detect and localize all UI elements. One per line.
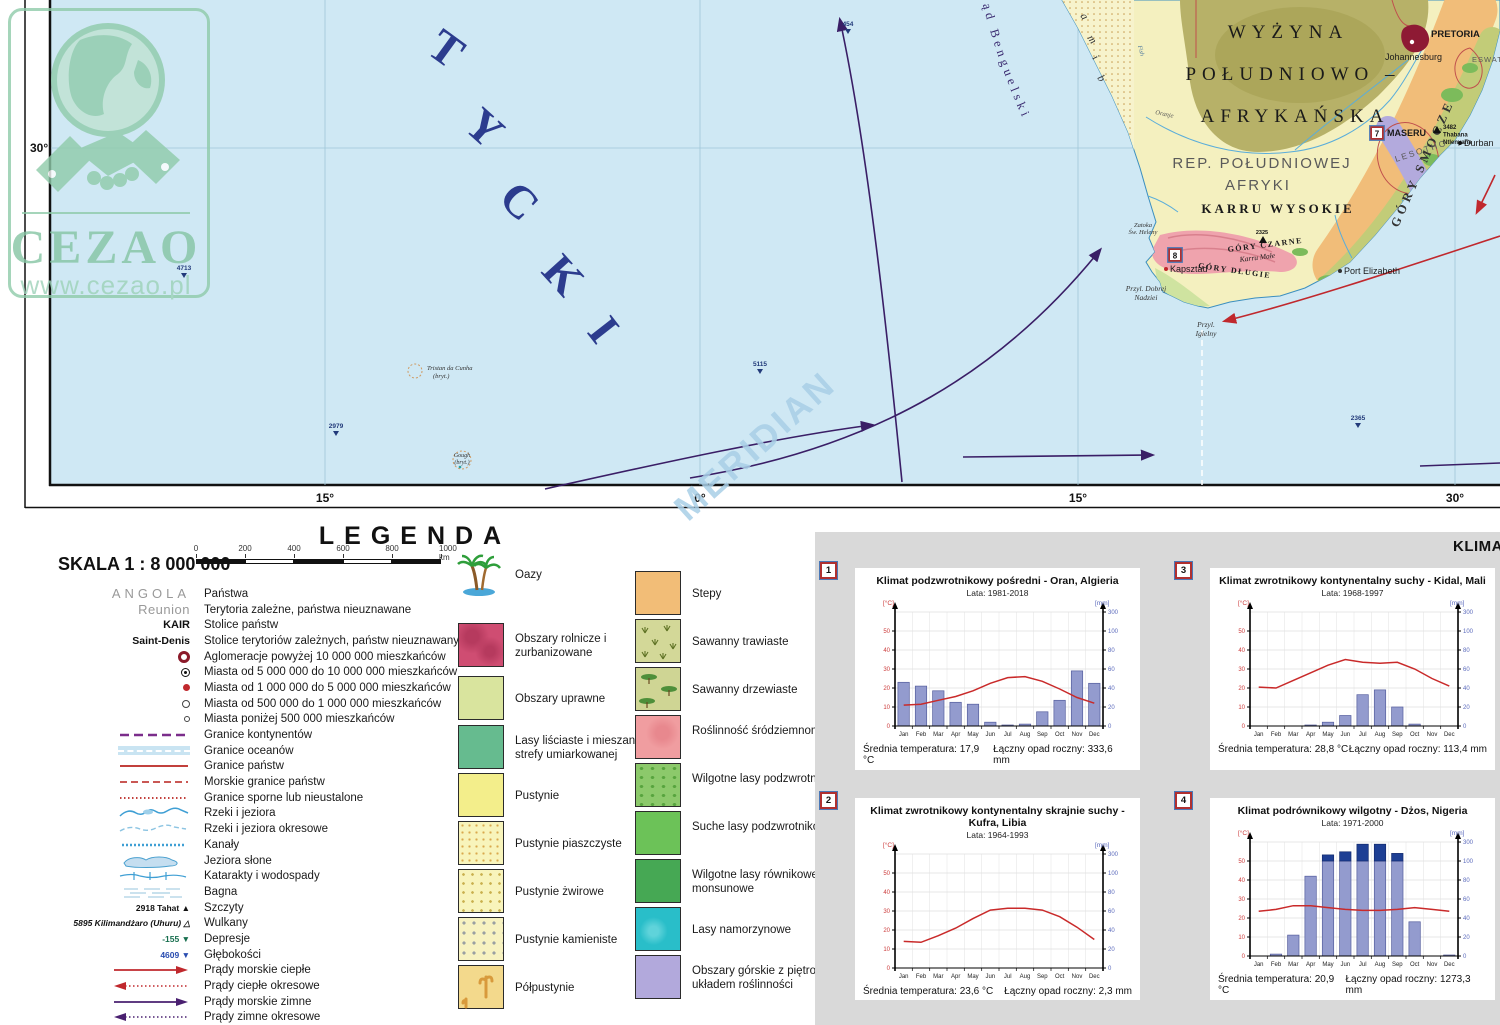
climate-panel-title: KLIMA [1453, 538, 1500, 555]
svg-text:30: 30 [883, 667, 890, 673]
chart-title: Klimat zwrotnikowy kontynentalny suchy -… [1210, 575, 1495, 587]
label-przyl-igielny-2: Igielny [1195, 329, 1217, 338]
cold-current-icon [112, 997, 190, 1007]
svg-text:Aug: Aug [1020, 732, 1031, 738]
svg-text:Sep: Sep [1037, 732, 1048, 738]
svg-text:100: 100 [1108, 871, 1119, 877]
svg-text:100: 100 [1108, 629, 1119, 635]
climograph-chart: 01020304050020406080100300JanFebMarAprMa… [1220, 828, 1485, 978]
svg-text:300: 300 [1463, 610, 1474, 616]
scale-tick: 400 [287, 544, 300, 553]
label-zatoka-1: Zatoka [1134, 222, 1152, 229]
svg-text:20: 20 [1108, 705, 1115, 711]
svg-text:50: 50 [883, 871, 890, 877]
label-poludniowo: POŁUDNIOWO – [1185, 64, 1400, 85]
label-johannesburg: Johannesburg [1385, 52, 1442, 62]
depth-sample: 4609 ▼ [160, 950, 190, 960]
waterfall-icon [118, 870, 190, 882]
svg-text:40: 40 [883, 890, 890, 896]
label-maseru: MASERU [1387, 128, 1426, 138]
svg-text:0: 0 [1242, 954, 1246, 960]
steppe-swatch [635, 571, 681, 615]
svg-text:Jan: Jan [899, 974, 909, 980]
humid-subtropical-forest-swatch [635, 763, 681, 807]
svg-text:Jul: Jul [1359, 962, 1367, 968]
svg-text:0: 0 [1108, 724, 1112, 730]
salt-lake-icon [118, 853, 190, 869]
label-wyzyna: WYŻYNA [1228, 22, 1348, 43]
svg-text:30: 30 [1238, 897, 1245, 903]
sand-desert-swatch [458, 821, 504, 865]
svg-text:Nov: Nov [1427, 732, 1438, 738]
climograph-chart: 01020304050020406080100300JanFebMarAprMa… [865, 840, 1130, 990]
warm-seasonal-current-icon [112, 981, 190, 991]
svg-text:Jun: Jun [1340, 732, 1350, 738]
svg-text:Feb: Feb [1271, 962, 1282, 968]
svg-text:Mar: Mar [933, 974, 943, 980]
svg-text:20: 20 [883, 928, 890, 934]
warm-current-icon [112, 965, 190, 975]
lon-label-15e: 15° [1069, 491, 1087, 505]
svg-text:Oct: Oct [1410, 962, 1420, 968]
state-border-icon [118, 761, 190, 771]
chart-years: Lata: 1964-1993 [855, 830, 1140, 840]
svg-text:Aug: Aug [1020, 974, 1031, 980]
svg-text:300: 300 [1108, 610, 1119, 616]
svg-text:Jan: Jan [899, 732, 909, 738]
svg-text:Dec: Dec [1444, 962, 1455, 968]
river-icon [118, 806, 190, 820]
label-thabana-elev: 3482 [1443, 125, 1457, 131]
svg-text:2325: 2325 [1256, 230, 1268, 236]
svg-text:20: 20 [1238, 916, 1245, 922]
svg-text:300: 300 [1463, 840, 1474, 846]
sea-border-icon [118, 777, 190, 787]
city-5m-icon [181, 668, 190, 677]
svg-text:Apr: Apr [951, 974, 960, 980]
desert-swatch [458, 773, 504, 817]
label-przyl-igielny-1: Przyl. [1196, 320, 1215, 329]
svg-text:Sep: Sep [1392, 732, 1403, 738]
svg-text:Dec: Dec [1089, 974, 1100, 980]
map-badge-8: 8 [1173, 252, 1178, 261]
svg-text:0: 0 [1463, 954, 1467, 960]
svg-text:[mm]: [mm] [1450, 600, 1465, 607]
label-gough-bryt: (bryt.) [454, 459, 469, 466]
svg-text:30: 30 [1238, 667, 1245, 673]
svg-text:20: 20 [1463, 935, 1470, 941]
grass-tufts-icon [635, 619, 681, 663]
svg-text:20: 20 [1238, 686, 1245, 692]
svg-text:Feb: Feb [916, 732, 927, 738]
svg-text:40: 40 [1238, 878, 1245, 884]
svg-text:2979: 2979 [329, 423, 344, 430]
svg-text:Dec: Dec [1089, 732, 1100, 738]
svg-text:300: 300 [1108, 852, 1119, 858]
svg-text:40: 40 [1108, 686, 1115, 692]
mediterranean-swatch [635, 715, 681, 759]
label-afrykanska: AFRYKAŃSKA [1201, 105, 1390, 127]
svg-text:10: 10 [883, 705, 890, 711]
svg-text:2365: 2365 [1351, 415, 1366, 422]
svg-text:20: 20 [1108, 947, 1115, 953]
svg-text:40: 40 [1238, 648, 1245, 654]
svg-text:Jun: Jun [1340, 962, 1350, 968]
svg-text:May: May [1322, 732, 1333, 738]
annual-precip: Łączny opad roczny: 113,4 mm [1349, 744, 1487, 755]
svg-text:Apr: Apr [951, 732, 960, 738]
map-section: 30° 15° 0° 15° 30° [0, 0, 1500, 510]
dependent-capital-sample: Saint-Denis [132, 635, 190, 647]
svg-text:Oct: Oct [1055, 732, 1065, 738]
svg-text:0: 0 [1463, 724, 1467, 730]
chart-badge-4: 4 [1175, 792, 1192, 809]
svg-text:80: 80 [1463, 878, 1470, 884]
svg-text:Jan: Jan [1254, 732, 1264, 738]
svg-text:100: 100 [1463, 859, 1474, 865]
label-pretoria: PRETORIA [1431, 29, 1480, 40]
climate-card-kufra: Klimat zwrotnikowy kontynentalny skrajni… [855, 798, 1140, 1000]
svg-text:60: 60 [1108, 667, 1115, 673]
svg-text:60: 60 [1463, 897, 1470, 903]
svg-text:10: 10 [1238, 935, 1245, 941]
svg-text:0: 0 [887, 724, 891, 730]
scale-tick: 1000 km [439, 544, 457, 562]
svg-text:100: 100 [1463, 629, 1474, 635]
annual-precip: Łączny opad roczny: 333,6 mm [993, 744, 1132, 766]
svg-text:40: 40 [883, 648, 890, 654]
label-durban: Durban [1464, 138, 1494, 148]
svg-text:4713: 4713 [177, 265, 192, 272]
label-zatoka-2: Św. Heleny [1129, 228, 1158, 236]
acacia-trees-icon [635, 667, 681, 711]
mangrove-swatch [635, 907, 681, 951]
farmland-swatch [458, 623, 504, 667]
disputed-border-icon [118, 793, 190, 803]
annual-precip: Łączny opad roczny: 1273,3 mm [1345, 974, 1487, 996]
svg-text:40: 40 [1108, 928, 1115, 934]
territory-name-sample: Reunion [138, 602, 190, 617]
svg-text:Jan: Jan [1254, 962, 1264, 968]
lon-label-30e: 30° [1446, 491, 1464, 505]
svg-text:0: 0 [1108, 966, 1112, 972]
label-afryki: AFRYKI [1225, 177, 1291, 194]
svg-text:Nov: Nov [1072, 974, 1083, 980]
climograph-dzos: 01020304050020406080100300JanFebMarAprMa… [1220, 828, 1485, 978]
scale-tick: 200 [238, 544, 251, 553]
climate-card-dzos: Klimat podrównikowy wilgotny - Dżos, Nig… [1210, 798, 1495, 1000]
equatorial-forest-swatch [635, 859, 681, 903]
scale-tick: 800 [385, 544, 398, 553]
svg-text:Feb: Feb [916, 974, 927, 980]
chart-years: Lata: 1968-1997 [1210, 588, 1495, 598]
svg-text:80: 80 [1108, 890, 1115, 896]
chart-badge-2: 2 [820, 792, 837, 809]
svg-text:50: 50 [1238, 629, 1245, 635]
svg-text:Oct: Oct [1055, 974, 1065, 980]
svg-text:80: 80 [1108, 648, 1115, 654]
svg-text:Jul: Jul [1004, 732, 1012, 738]
svg-text:[°C]: [°C] [883, 841, 894, 849]
climograph-chart: 01020304050020406080100300JanFebMarAprMa… [1220, 598, 1485, 748]
marsh-icon [118, 886, 190, 898]
svg-text:10: 10 [883, 947, 890, 953]
svg-text:Nov: Nov [1427, 962, 1438, 968]
depression-sample: -155 ▼ [162, 934, 190, 944]
label-karru-wysokie: KARRU WYSOKIE [1201, 201, 1354, 216]
chart-badge-1: 1 [820, 562, 837, 579]
svg-text:80: 80 [1463, 648, 1470, 654]
svg-text:40: 40 [1463, 916, 1470, 922]
peak-sample: 2918 Tahat ▲ [136, 903, 190, 913]
svg-text:Jul: Jul [1004, 974, 1012, 980]
dry-subtropical-forest-swatch [635, 811, 681, 855]
svg-text:Mar: Mar [1288, 732, 1298, 738]
svg-text:May: May [967, 974, 978, 980]
canal-icon [118, 841, 190, 849]
svg-text:5115: 5115 [753, 361, 767, 368]
label-eswatini: ESWATINI [1472, 55, 1500, 64]
svg-text:60: 60 [1108, 909, 1115, 915]
cold-seasonal-current-icon [112, 1012, 190, 1022]
lat-label-30: 30° [30, 141, 48, 155]
annual-precip: Łączny opad roczny: 2,3 mm [1004, 986, 1132, 997]
svg-text:60: 60 [1463, 667, 1470, 673]
svg-text:[mm]: [mm] [1095, 842, 1110, 849]
avg-temp: Średnia temperatura: 23,6 °C [863, 986, 993, 997]
svg-text:Oct: Oct [1410, 732, 1420, 738]
svg-text:40: 40 [1463, 686, 1470, 692]
legend-symbol-list: ANGOLAPaństwa ReunionTerytoria zależne, … [60, 586, 455, 1025]
avg-temp: Średnia temperatura: 20,9 °C [1218, 974, 1345, 996]
avg-temp: Średnia temperatura: 17,9 °C [863, 744, 993, 766]
svg-text:Mar: Mar [933, 732, 943, 738]
seasonal-river-icon [118, 823, 190, 835]
legend-section: LEGENDA SKALA 1 : 8 000 000 0 200 400 60… [0, 510, 815, 1025]
continent-border-icon [118, 730, 190, 740]
svg-text:Jun: Jun [985, 732, 995, 738]
country-name-sample: ANGOLA [112, 586, 190, 601]
ocean-border-icon [118, 746, 190, 755]
svg-text:30: 30 [883, 909, 890, 915]
map-svg: 30° 15° 0° 15° 30° [0, 0, 1500, 510]
svg-text:[°C]: [°C] [883, 599, 894, 607]
svg-text:Sep: Sep [1037, 974, 1048, 980]
chart-title: Klimat podzwrotnikowy pośredni - Oran, A… [855, 575, 1140, 587]
svg-text:Jun: Jun [985, 974, 995, 980]
svg-text:[mm]: [mm] [1450, 830, 1465, 837]
climate-card-kidal: Klimat zwrotnikowy kontynentalny suchy -… [1210, 568, 1495, 770]
scale-bar: 0 200 400 600 800 1000 km [196, 544, 466, 572]
svg-text:Nov: Nov [1072, 732, 1083, 738]
svg-text:[°C]: [°C] [1238, 599, 1249, 607]
svg-text:Jul: Jul [1359, 732, 1367, 738]
lon-label-0: 0° [694, 491, 706, 505]
cropland-swatch [458, 676, 504, 720]
gravel-desert-swatch [458, 869, 504, 913]
map-badge-7: 7 [1375, 130, 1380, 139]
svg-text:[°C]: [°C] [1238, 829, 1249, 837]
svg-text:0: 0 [887, 966, 891, 972]
cactus-icon [458, 965, 504, 1009]
svg-text:Aug: Aug [1375, 732, 1386, 738]
svg-text:20: 20 [1463, 705, 1470, 711]
label-tristan-bryt: (bryt.) [433, 373, 449, 380]
climate-card-oran: Klimat podzwrotnikowy pośredni - Oran, A… [855, 568, 1140, 770]
oasis-palm-icon [456, 553, 502, 597]
svg-text:Apr: Apr [1306, 962, 1315, 968]
svg-text:0: 0 [1242, 724, 1246, 730]
stone-desert-swatch [458, 917, 504, 961]
mountain-vegetation-swatch [635, 955, 681, 999]
svg-text:Dec: Dec [1444, 732, 1455, 738]
svg-text:20: 20 [883, 686, 890, 692]
chart-years: Lata: 1971-2000 [1210, 818, 1495, 828]
svg-text:Sep: Sep [1392, 962, 1403, 968]
climograph-oran: 01020304050020406080100300JanFebMarAprMa… [865, 598, 1130, 748]
climograph-kidal: 01020304050020406080100300JanFebMarAprMa… [1220, 598, 1485, 748]
chart-years: Lata: 1981-2018 [855, 588, 1140, 598]
svg-text:50: 50 [1238, 859, 1245, 865]
label-rep-poludniowej: REP. POŁUDNIOWEJ [1172, 155, 1351, 172]
atlas-sheet: 30° 15° 0° 15° 30° [0, 0, 1500, 1025]
city-1m-icon [183, 684, 190, 691]
label-tristan: Tristan da Cunha [427, 365, 473, 372]
svg-text:Apr: Apr [1306, 732, 1315, 738]
svg-text:Feb: Feb [1271, 732, 1282, 738]
climograph-kufra: 01020304050020406080100300JanFebMarAprMa… [865, 840, 1130, 990]
climograph-chart: 01020304050020406080100300JanFebMarAprMa… [865, 598, 1130, 748]
climate-panel: KLIMA 1 Klimat podzwrotnikowy pośredni -… [815, 532, 1500, 1025]
city-500k-icon [182, 700, 190, 708]
city-small-icon [184, 716, 190, 722]
chart-badge-3: 3 [1175, 562, 1192, 579]
svg-text:May: May [967, 732, 978, 738]
svg-text:May: May [1322, 962, 1333, 968]
svg-text:[mm]: [mm] [1095, 600, 1110, 607]
label-port-elizabeth: Port Elizabeth [1344, 266, 1400, 276]
volcano-sample: 5895 Kilimandżaro (Uhuru) △ [73, 918, 190, 929]
avg-temp: Średnia temperatura: 28,8 °C [1218, 744, 1348, 755]
chart-title: Klimat zwrotnikowy kontynentalny skrajni… [855, 805, 1140, 829]
label-gough: Gough [454, 453, 470, 459]
scale-tick: 600 [336, 544, 349, 553]
svg-text:10: 10 [1238, 705, 1245, 711]
svg-text:Aug: Aug [1375, 962, 1386, 968]
capital-name-sample: KAIR [163, 619, 190, 631]
label-przyl-dobrej: Przyl. Dobrej [1125, 284, 1167, 293]
svg-text:Mar: Mar [1288, 962, 1298, 968]
label-kapsztad: Kapsztad [1170, 264, 1208, 274]
chart-title: Klimat podrównikowy wilgotny - Dżos, Nig… [1210, 805, 1495, 817]
temperate-forest-swatch [458, 725, 504, 769]
lon-label-15w: 15° [316, 491, 334, 505]
scale-tick: 0 [194, 544, 198, 553]
label-nadziei: Nadziei [1134, 293, 1158, 302]
svg-text:454: 454 [843, 21, 854, 28]
agglomeration-icon [178, 651, 190, 663]
svg-text:50: 50 [883, 629, 890, 635]
